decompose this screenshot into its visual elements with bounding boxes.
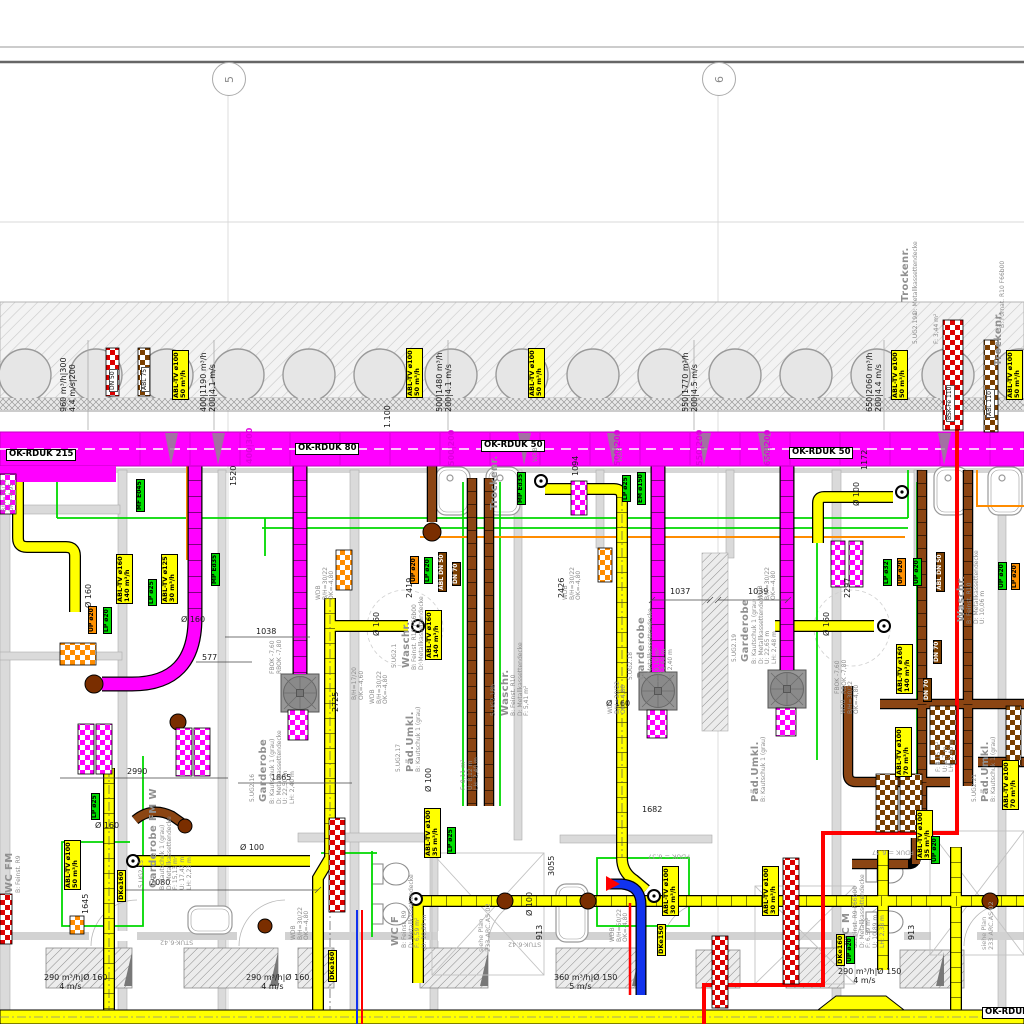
grid-bubble-6-label: 6 xyxy=(713,76,726,83)
grid-bubble-5-label: 5 xyxy=(223,76,236,83)
grid-bubble-5: 5 xyxy=(212,62,246,96)
hvac-floor-plan: 5 6 960 m³/h|300 4.4 m/s|200400|1190 m³/… xyxy=(0,0,1024,1024)
dimension-lines xyxy=(60,597,791,893)
valve-symbols xyxy=(127,475,998,909)
grid-bubble-6: 6 xyxy=(702,62,736,96)
floor-plan-canvas xyxy=(0,0,1024,1024)
